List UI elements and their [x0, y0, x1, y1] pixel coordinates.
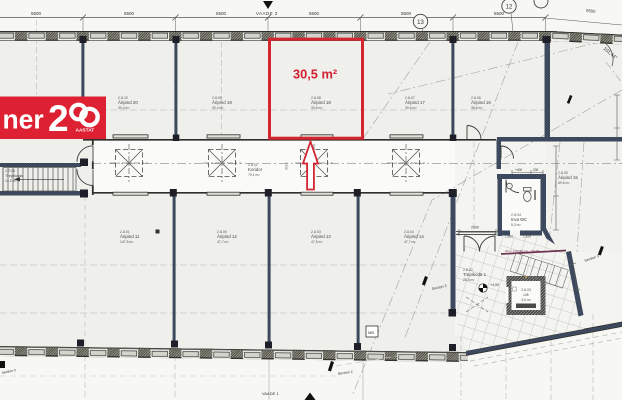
svg-text:Äripind 17: Äripind 17 — [405, 100, 425, 105]
svg-text:30,4 m²: 30,4 m² — [212, 106, 224, 110]
svg-text:47,7 m²: 47,7 m² — [217, 240, 229, 244]
svg-text:69,6 m²: 69,6 m² — [558, 181, 570, 185]
svg-text:VAADE 3: VAADE 3 — [256, 11, 278, 16]
svg-text:147,5 m²: 147,5 m² — [120, 240, 134, 244]
svg-text:38,6 m²: 38,6 m² — [471, 106, 483, 110]
svg-text:3010: 3010 — [285, 162, 289, 170]
svg-text:Lift: Lift — [523, 292, 529, 297]
svg-text:Äripind 12: Äripind 12 — [217, 234, 237, 239]
svg-text:12: 12 — [506, 5, 513, 11]
svg-text:Äripind 13: Äripind 13 — [311, 234, 331, 239]
svg-text:30,6 m²: 30,6 m² — [405, 106, 417, 110]
svg-text:Äripind 14: Äripind 14 — [404, 234, 424, 239]
svg-text:5500: 5500 — [31, 11, 42, 16]
svg-text:ner: ner — [3, 105, 44, 135]
svg-text:3,6 m²: 3,6 m² — [521, 298, 531, 302]
svg-text:20x = 170/280 mm 20x280: 20x = 170/280 mm 20x280 — [505, 249, 540, 253]
svg-text:5500: 5500 — [586, 8, 596, 14]
svg-text:30,5 m²: 30,5 m² — [311, 106, 323, 110]
svg-text:47,5 m²: 47,5 m² — [311, 240, 323, 244]
svg-text:25,5 m²: 25,5 m² — [463, 278, 475, 282]
svg-text:Inva WC: Inva WC — [511, 217, 527, 222]
svg-text:Äripind 19: Äripind 19 — [212, 100, 232, 105]
svg-text:47,7 m²: 47,7 m² — [404, 240, 416, 244]
svg-text:VAADE 1: VAADE 1 — [262, 391, 279, 396]
svg-text:Koridor: Koridor — [248, 167, 263, 172]
svg-text:5500: 5500 — [124, 11, 135, 16]
svg-text:30,4 m²: 30,4 m² — [118, 106, 130, 110]
svg-text:2500: 2500 — [471, 226, 479, 230]
svg-text:+4,00: +4,00 — [490, 283, 499, 287]
svg-text:1:100: 1:100 — [505, 235, 513, 239]
svg-text:Äripind 16: Äripind 16 — [471, 100, 491, 105]
svg-text:5500: 5500 — [216, 11, 227, 16]
svg-text:5500: 5500 — [309, 11, 320, 16]
svg-text:Äripind 20: Äripind 20 — [118, 100, 138, 105]
svg-text:Trepikoda: Trepikoda — [5, 173, 23, 178]
svg-text:Trepikoda 1: Trepikoda 1 — [463, 272, 487, 277]
svg-text:Äripind 15: Äripind 15 — [558, 175, 578, 180]
svg-text:79,1 m²: 79,1 m² — [248, 173, 260, 177]
svg-text:2: 2 — [48, 98, 69, 139]
svg-text:5500: 5500 — [401, 11, 412, 16]
svg-text:Äripind 11: Äripind 11 — [120, 234, 140, 239]
svg-text:Äripind 18: Äripind 18 — [311, 100, 331, 105]
svg-text:AASTAT: AASTAT — [76, 128, 95, 134]
svg-text:30,5 m²: 30,5 m² — [293, 67, 337, 82]
svg-text:200: 200 — [533, 168, 539, 172]
svg-text:5500: 5500 — [494, 11, 505, 16]
svg-text:14,5 m²: 14,5 m² — [5, 179, 17, 183]
svg-text:1:100: 1:100 — [523, 235, 531, 239]
svg-text:+400: +400 — [515, 168, 522, 172]
svg-text:13: 13 — [417, 20, 424, 26]
svg-text:5,3 m²: 5,3 m² — [511, 223, 521, 227]
svg-text:MB: MB — [368, 330, 374, 335]
